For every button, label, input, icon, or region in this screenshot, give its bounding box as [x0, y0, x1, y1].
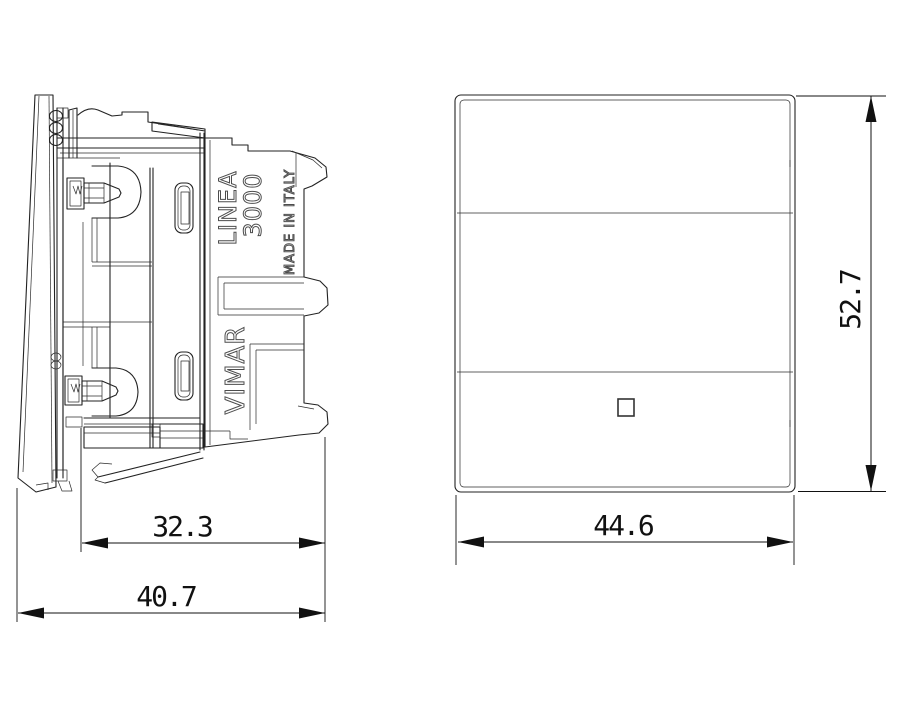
cover-plate-outline [455, 95, 795, 492]
slot-lower [175, 352, 193, 400]
bottom-claw-assembly [66, 417, 203, 483]
led-indicator-square [618, 399, 634, 416]
slot-upper [175, 183, 193, 233]
dimension-body-depth-value: 32.3 [152, 510, 212, 543]
engraved-series-line2: 3000 [239, 172, 267, 237]
dimension-height: 52.7 [796, 96, 886, 492]
dimension-total-depth-value: 40.7 [136, 580, 196, 613]
dimension-total-depth: 40.7 [17, 488, 325, 622]
dimension-width: 44.6 [456, 495, 794, 565]
side-view: LINEA 3000 MADE IN ITALY VIMAR 32.3 40.7 [17, 95, 328, 622]
knurled-screw-top [50, 111, 63, 146]
upper-screw-pin [67, 166, 141, 218]
rocker-paddle-profile [18, 95, 56, 492]
top-bracket [57, 108, 232, 158]
dimension-body-depth: 32.3 [81, 428, 325, 622]
technical-drawing-canvas: LINEA 3000 MADE IN ITALY VIMAR 32.3 40.7 [0, 0, 900, 720]
engraved-brand: VIMAR [221, 326, 251, 415]
engraved-series-line1: LINEA [214, 171, 242, 246]
knurled-screw-bottom [51, 353, 61, 369]
drawing-sheet: LINEA 3000 MADE IN ITALY VIMAR 32.3 40.7 [0, 0, 900, 720]
lower-screw-pin [65, 368, 138, 416]
dimension-width-value: 44.6 [593, 509, 654, 542]
engraved-made-in-italy: MADE IN ITALY [283, 169, 298, 275]
front-view: 44.6 52.7 [455, 95, 886, 565]
dimension-height-value: 52.7 [834, 270, 867, 330]
